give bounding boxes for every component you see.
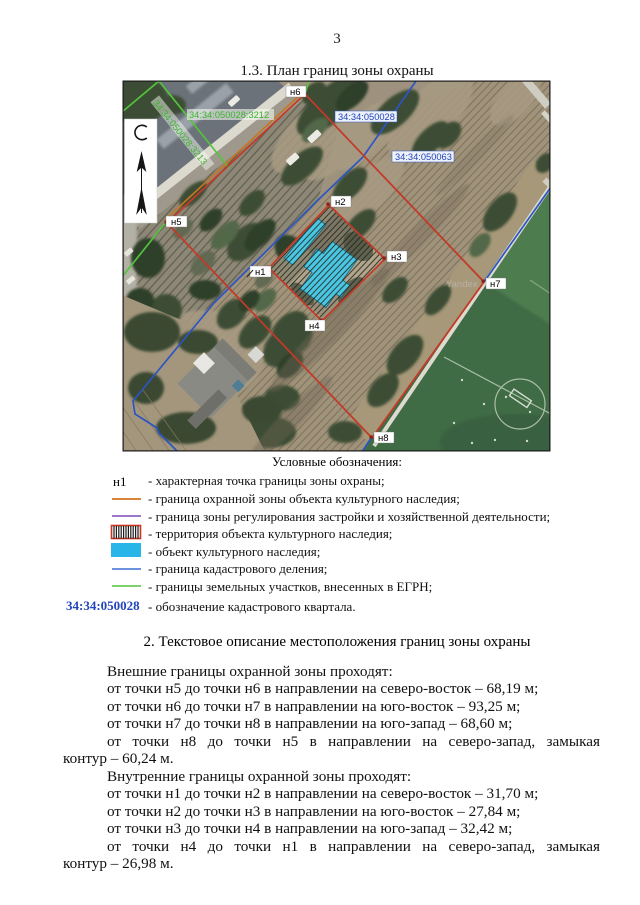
svg-text:н1: н1: [255, 267, 266, 278]
svg-text:34:34:050028: 34:34:050028: [338, 112, 395, 122]
svg-text:Yandex: Yandex: [446, 279, 478, 290]
svg-text:34:34:050063: 34:34:050063: [395, 152, 452, 162]
svg-text:н6: н6: [290, 87, 301, 98]
svg-text:н8: н8: [378, 433, 389, 444]
svg-text:н1: н1: [113, 474, 126, 489]
svg-text:н3: н3: [391, 252, 402, 263]
svg-text:н2: н2: [335, 197, 346, 208]
svg-text:н4: н4: [309, 321, 320, 332]
svg-text:34:34:050028: 34:34:050028: [66, 598, 140, 613]
svg-text:34:34:050028:3212: 34:34:050028:3212: [189, 110, 269, 120]
svg-text:н7: н7: [490, 279, 501, 290]
svg-text:н5: н5: [171, 217, 182, 228]
